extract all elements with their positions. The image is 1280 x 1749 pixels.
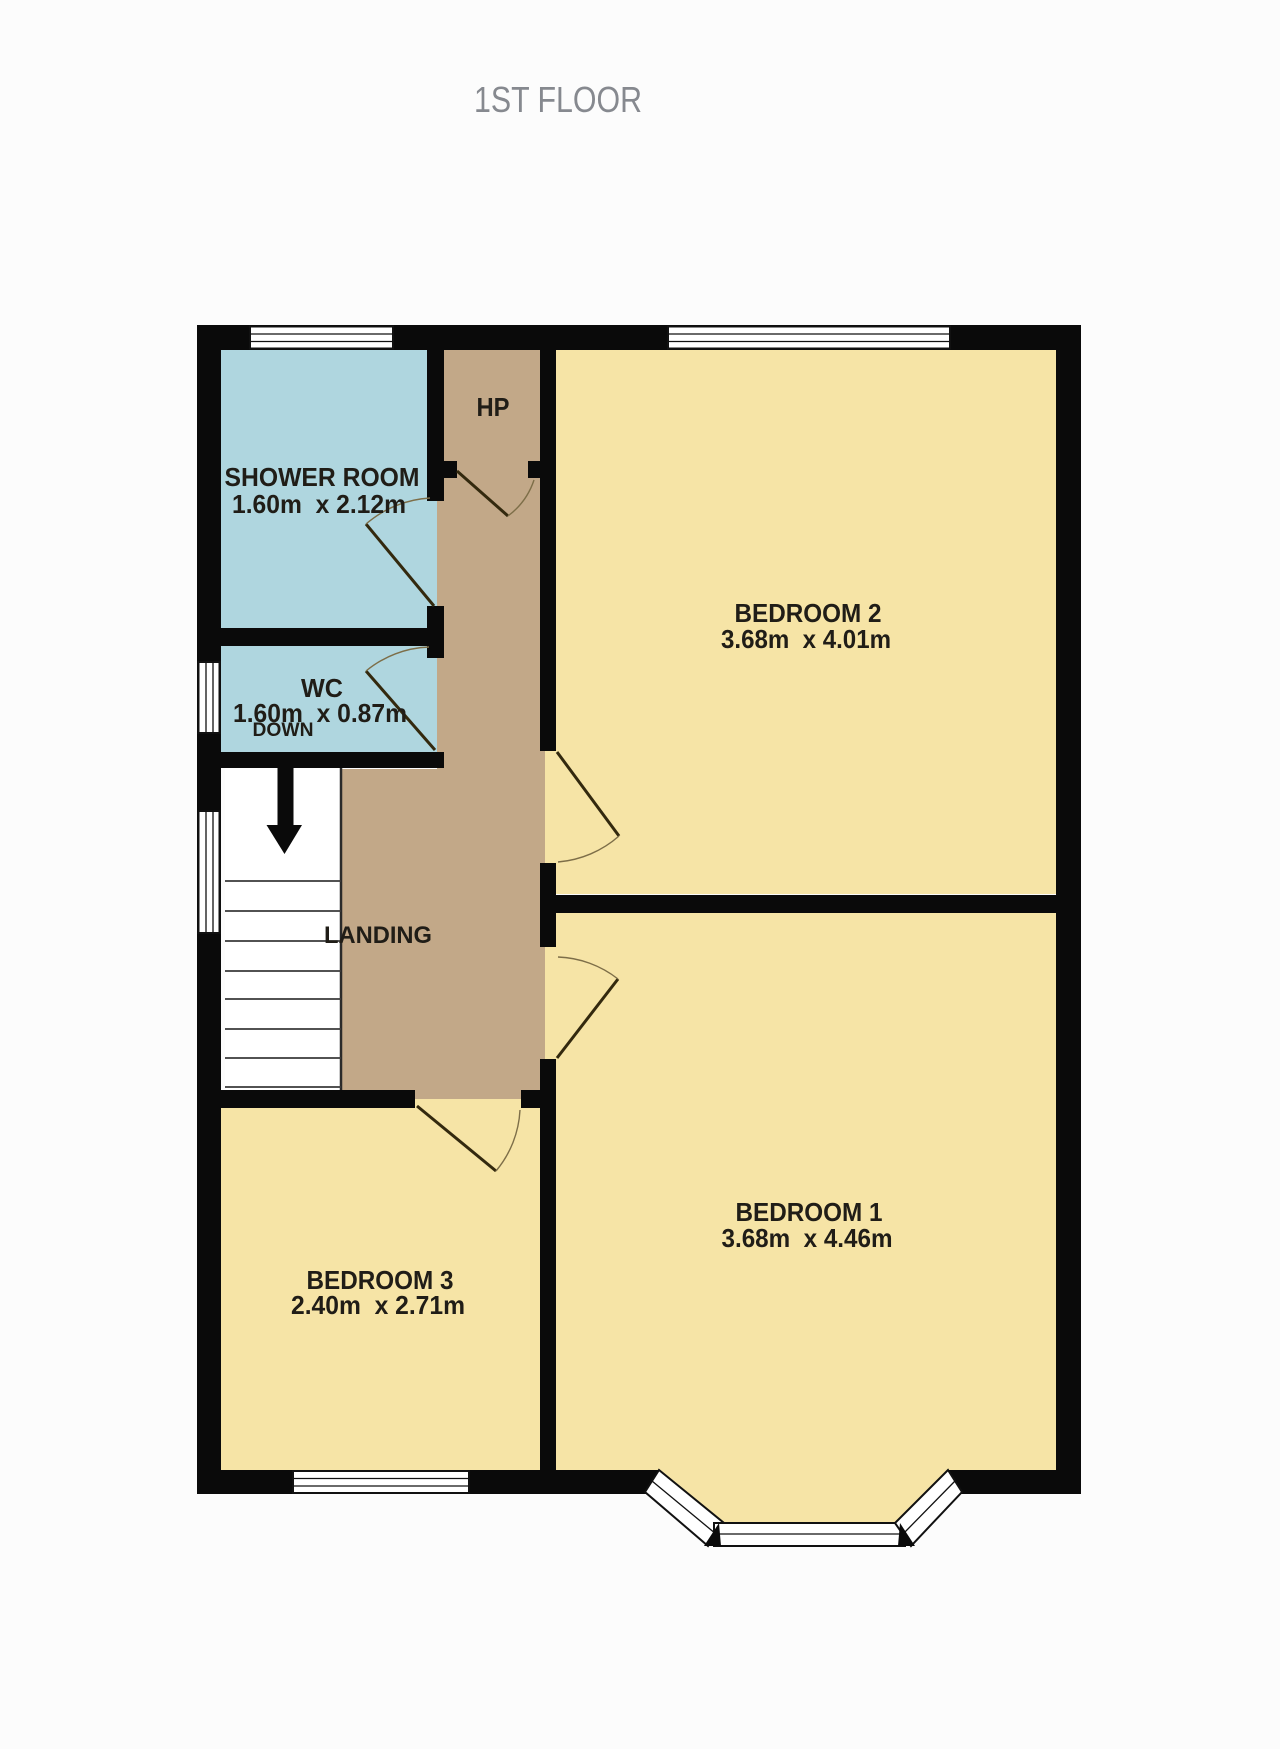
svg-text:1ST FLOOR: 1ST FLOOR [474,79,642,120]
svg-text:DOWN: DOWN [253,720,314,741]
svg-text:3.68m x 4.46m: 3.68m x 4.46m [722,1223,893,1253]
svg-text:2.40m x 2.71m: 2.40m x 2.71m [291,1290,465,1320]
svg-text:LANDING: LANDING [324,922,432,949]
svg-text:3.68m x 4.01m: 3.68m x 4.01m [721,624,891,654]
svg-text:1.60m x 2.12m: 1.60m x 2.12m [232,489,406,519]
svg-text:SHOWER ROOM: SHOWER ROOM [225,462,420,492]
svg-text:HP: HP [477,392,510,422]
